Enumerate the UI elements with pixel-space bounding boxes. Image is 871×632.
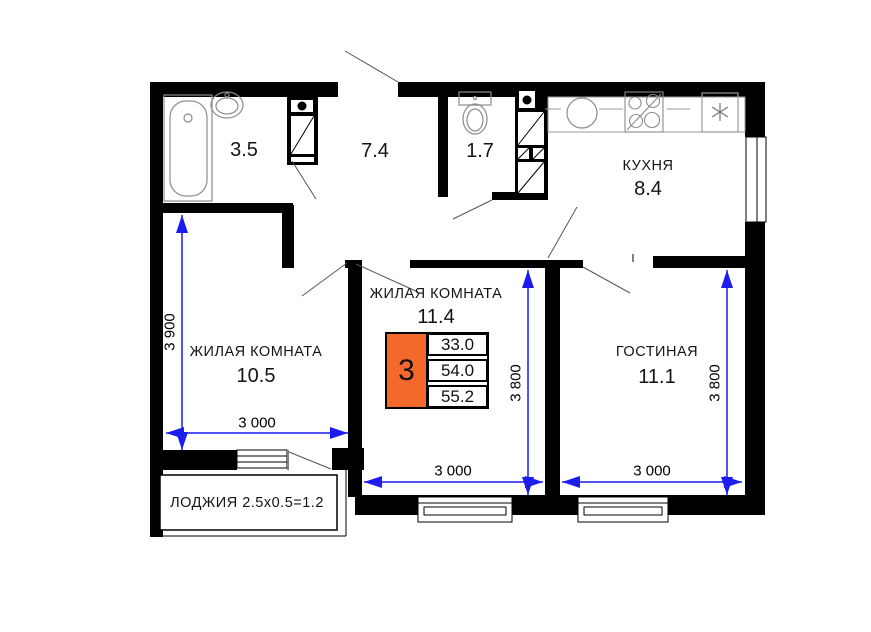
apartment-info-table: 3 33.0 54.0 55.2 bbox=[385, 332, 489, 409]
dim-left-width: 3 000 bbox=[238, 416, 276, 431]
bathroom-door-swing-icon bbox=[292, 161, 316, 199]
fridge-icon bbox=[702, 93, 738, 132]
living-area-cell: 33.0 bbox=[427, 333, 488, 356]
areas-column: 33.0 54.0 55.2 bbox=[428, 334, 487, 407]
dim-center-width: 3 000 bbox=[434, 464, 472, 479]
kitchen-window bbox=[745, 137, 768, 222]
wc-area-label: 1.7 bbox=[466, 141, 494, 161]
center-room-window bbox=[418, 497, 512, 522]
left-room-window bbox=[237, 450, 287, 468]
kitchen-name-label: КУХНЯ bbox=[623, 159, 674, 174]
dim-left-height: 3 900 bbox=[163, 313, 178, 351]
apartment-area-cell: 54.0 bbox=[427, 359, 488, 382]
dim-right-width: 3 000 bbox=[633, 464, 671, 479]
left-room-door-swing-icon bbox=[302, 263, 347, 296]
left-room-area-label: 10.5 bbox=[237, 366, 276, 386]
bathtub bbox=[164, 95, 212, 201]
center-room-area-label: 11.4 bbox=[417, 307, 454, 327]
living-room-window bbox=[578, 497, 668, 522]
dim-right-height: 3 800 bbox=[708, 364, 723, 402]
kitchen-area-label: 8.4 bbox=[634, 179, 662, 199]
living-room-door-swing-icon bbox=[583, 267, 630, 293]
stove-icon bbox=[625, 92, 663, 132]
kitchen-door-swing-icon bbox=[548, 207, 577, 258]
entrance-door-swing-icon bbox=[345, 51, 398, 82]
floor-plan: 3.5 7.4 1.7 КУХНЯ 8.4 ЖИЛАЯ КОМНАТА 11.4… bbox=[0, 0, 871, 632]
wc-door-swing-icon bbox=[453, 200, 492, 219]
loggia-label: ЛОДЖИЯ 2.5x0.5=1.2 bbox=[170, 496, 324, 511]
balcony-door bbox=[287, 450, 332, 470]
center-room-name-label: ЖИЛАЯ КОМНАТА bbox=[370, 287, 503, 302]
toilet bbox=[459, 92, 491, 134]
living-room-area-label: 11.1 bbox=[638, 367, 675, 387]
hallway-area-label: 7.4 bbox=[361, 141, 389, 161]
left-room-name-label: ЖИЛАЯ КОМНАТА bbox=[190, 345, 323, 360]
living-room-name-label: ГОСТИНАЯ bbox=[616, 345, 698, 360]
kitchen-sink-icon bbox=[567, 98, 597, 128]
rooms-count-cell: 3 bbox=[387, 334, 428, 407]
bathroom-shaft bbox=[287, 97, 318, 165]
total-area-cell: 55.2 bbox=[427, 385, 488, 408]
bathroom-area-label: 3.5 bbox=[230, 140, 258, 160]
wc-shaft bbox=[515, 87, 548, 200]
dim-center-height: 3 800 bbox=[509, 364, 524, 402]
